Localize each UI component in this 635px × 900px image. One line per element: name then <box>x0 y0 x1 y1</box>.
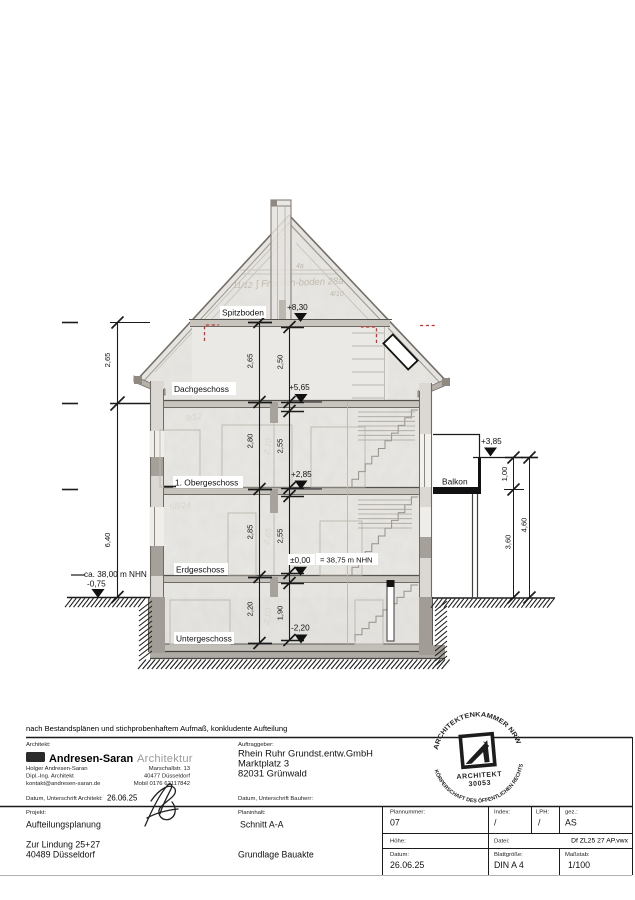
svg-text:11/12: 11/12 <box>233 281 253 290</box>
svg-text:Index:: Index: <box>494 810 510 816</box>
svg-text:1/100: 1/100 <box>568 860 590 870</box>
svg-text:4,60: 4,60 <box>520 518 529 533</box>
svg-text:26.06.25: 26.06.25 <box>390 860 424 870</box>
svg-text:Dachgeschoss: Dachgeschoss <box>174 384 229 394</box>
svg-text:3,60: 3,60 <box>504 535 513 550</box>
svg-text:-0,75: -0,75 <box>87 580 106 589</box>
svg-text:Datei:: Datei: <box>494 839 510 845</box>
svg-text:82031 Grünwald: 82031 Grünwald <box>238 768 307 779</box>
svg-text:Aufteilungsplanung: Aufteilungsplanung <box>26 820 101 830</box>
svg-text:Marschallstr. 13: Marschallstr. 13 <box>149 766 191 772</box>
svg-text:gez.:: gez.: <box>565 810 578 816</box>
svg-text:40489 Düsseldorf: 40489 Düsseldorf <box>26 850 96 860</box>
svg-text:Holger Andresen-Saran: Holger Andresen-Saran <box>26 766 88 772</box>
svg-text:2,85: 2,85 <box>246 525 255 540</box>
svg-text:2,55: 2,55 <box>276 439 285 454</box>
svg-text:1,90: 1,90 <box>276 606 285 621</box>
svg-text:Blattgröße:: Blattgröße: <box>494 852 523 858</box>
svg-text:kontakt@andresen-saran.de: kontakt@andresen-saran.de <box>26 781 101 787</box>
svg-text:1. Obergeschoss: 1. Obergeschoss <box>175 478 238 488</box>
svg-text:Spitzboden: Spitzboden <box>222 308 264 318</box>
svg-text:Plannummer:: Plannummer: <box>390 810 425 816</box>
svg-text:2,65: 2,65 <box>246 354 255 369</box>
svg-text:Andresen-Saran: Andresen-Saran <box>49 753 133 765</box>
svg-text:4a: 4a <box>296 263 304 270</box>
svg-text:Planinhalt:: Planinhalt: <box>238 810 266 816</box>
svg-text:2,55: 2,55 <box>276 529 285 544</box>
svg-text:Erdgeschoss: Erdgeschoss <box>176 565 224 575</box>
svg-text:Datum, Unterschrift Architekt:: Datum, Unterschrift Architekt: <box>26 796 103 802</box>
svg-text:Datum, Unterschrift Bauherr:: Datum, Unterschrift Bauherr: <box>238 796 313 802</box>
svg-text:26.06.25: 26.06.25 <box>107 794 138 803</box>
svg-text:+5,65: +5,65 <box>289 383 310 392</box>
svg-text:1,00: 1,00 <box>500 467 509 482</box>
svg-text:Datum:: Datum: <box>390 852 409 858</box>
svg-text:2,20: 2,20 <box>246 602 255 617</box>
svg-text:+3,85: +3,85 <box>481 437 502 446</box>
svg-text:Df ZL25 27 AP.vwx: Df ZL25 27 AP.vwx <box>571 838 629 845</box>
svg-text:Maßstab:: Maßstab: <box>565 852 590 858</box>
svg-text:= 38,75 m NHN: = 38,75 m NHN <box>320 556 373 565</box>
svg-text:Schnitt A-A: Schnitt A-A <box>240 820 284 830</box>
svg-text:Zur Lindung 25+27: Zur Lindung 25+27 <box>26 840 100 850</box>
svg-text:AS: AS <box>565 818 577 828</box>
svg-text:40477 Düsseldorf: 40477 Düsseldorf <box>144 774 191 780</box>
svg-text:Untergeschoss: Untergeschoss <box>176 634 232 644</box>
svg-text:nach Bestandsplänen und stichp: nach Bestandsplänen und stichprobenhafte… <box>26 724 287 733</box>
svg-text:Höhe:: Höhe: <box>390 839 406 845</box>
svg-text:+2,85: +2,85 <box>291 470 312 479</box>
svg-text:Mobil 0176 62117842: Mobil 0176 62117842 <box>134 781 190 787</box>
svg-text:±0,00: ±0,00 <box>290 556 311 565</box>
svg-text:Dipl.-Ing. Architekt: Dipl.-Ing. Architekt <box>26 774 74 780</box>
svg-text:07: 07 <box>390 818 400 828</box>
svg-text:-2,20: -2,20 <box>291 624 310 633</box>
svg-text:Architektur: Architektur <box>137 753 193 765</box>
svg-text:Grundlage Bauakte: Grundlage Bauakte <box>238 850 314 860</box>
svg-text:ca. 38,00 m NHN: ca. 38,00 m NHN <box>84 570 147 579</box>
svg-text:2,50: 2,50 <box>276 355 285 370</box>
svg-text:Projekt:: Projekt: <box>26 810 46 816</box>
svg-text:2,80: 2,80 <box>246 434 255 449</box>
svg-text:4/10: 4/10 <box>330 291 344 298</box>
svg-text:+8,30: +8,30 <box>287 303 308 312</box>
svg-text:Architekt:: Architekt: <box>26 742 51 748</box>
svg-text:Balkon: Balkon <box>442 477 468 487</box>
svg-text:6,40: 6,40 <box>103 533 112 548</box>
svg-text:DIN A 4: DIN A 4 <box>494 860 524 870</box>
svg-text:2,65: 2,65 <box>103 353 112 368</box>
svg-text:LPH:: LPH: <box>536 810 549 816</box>
